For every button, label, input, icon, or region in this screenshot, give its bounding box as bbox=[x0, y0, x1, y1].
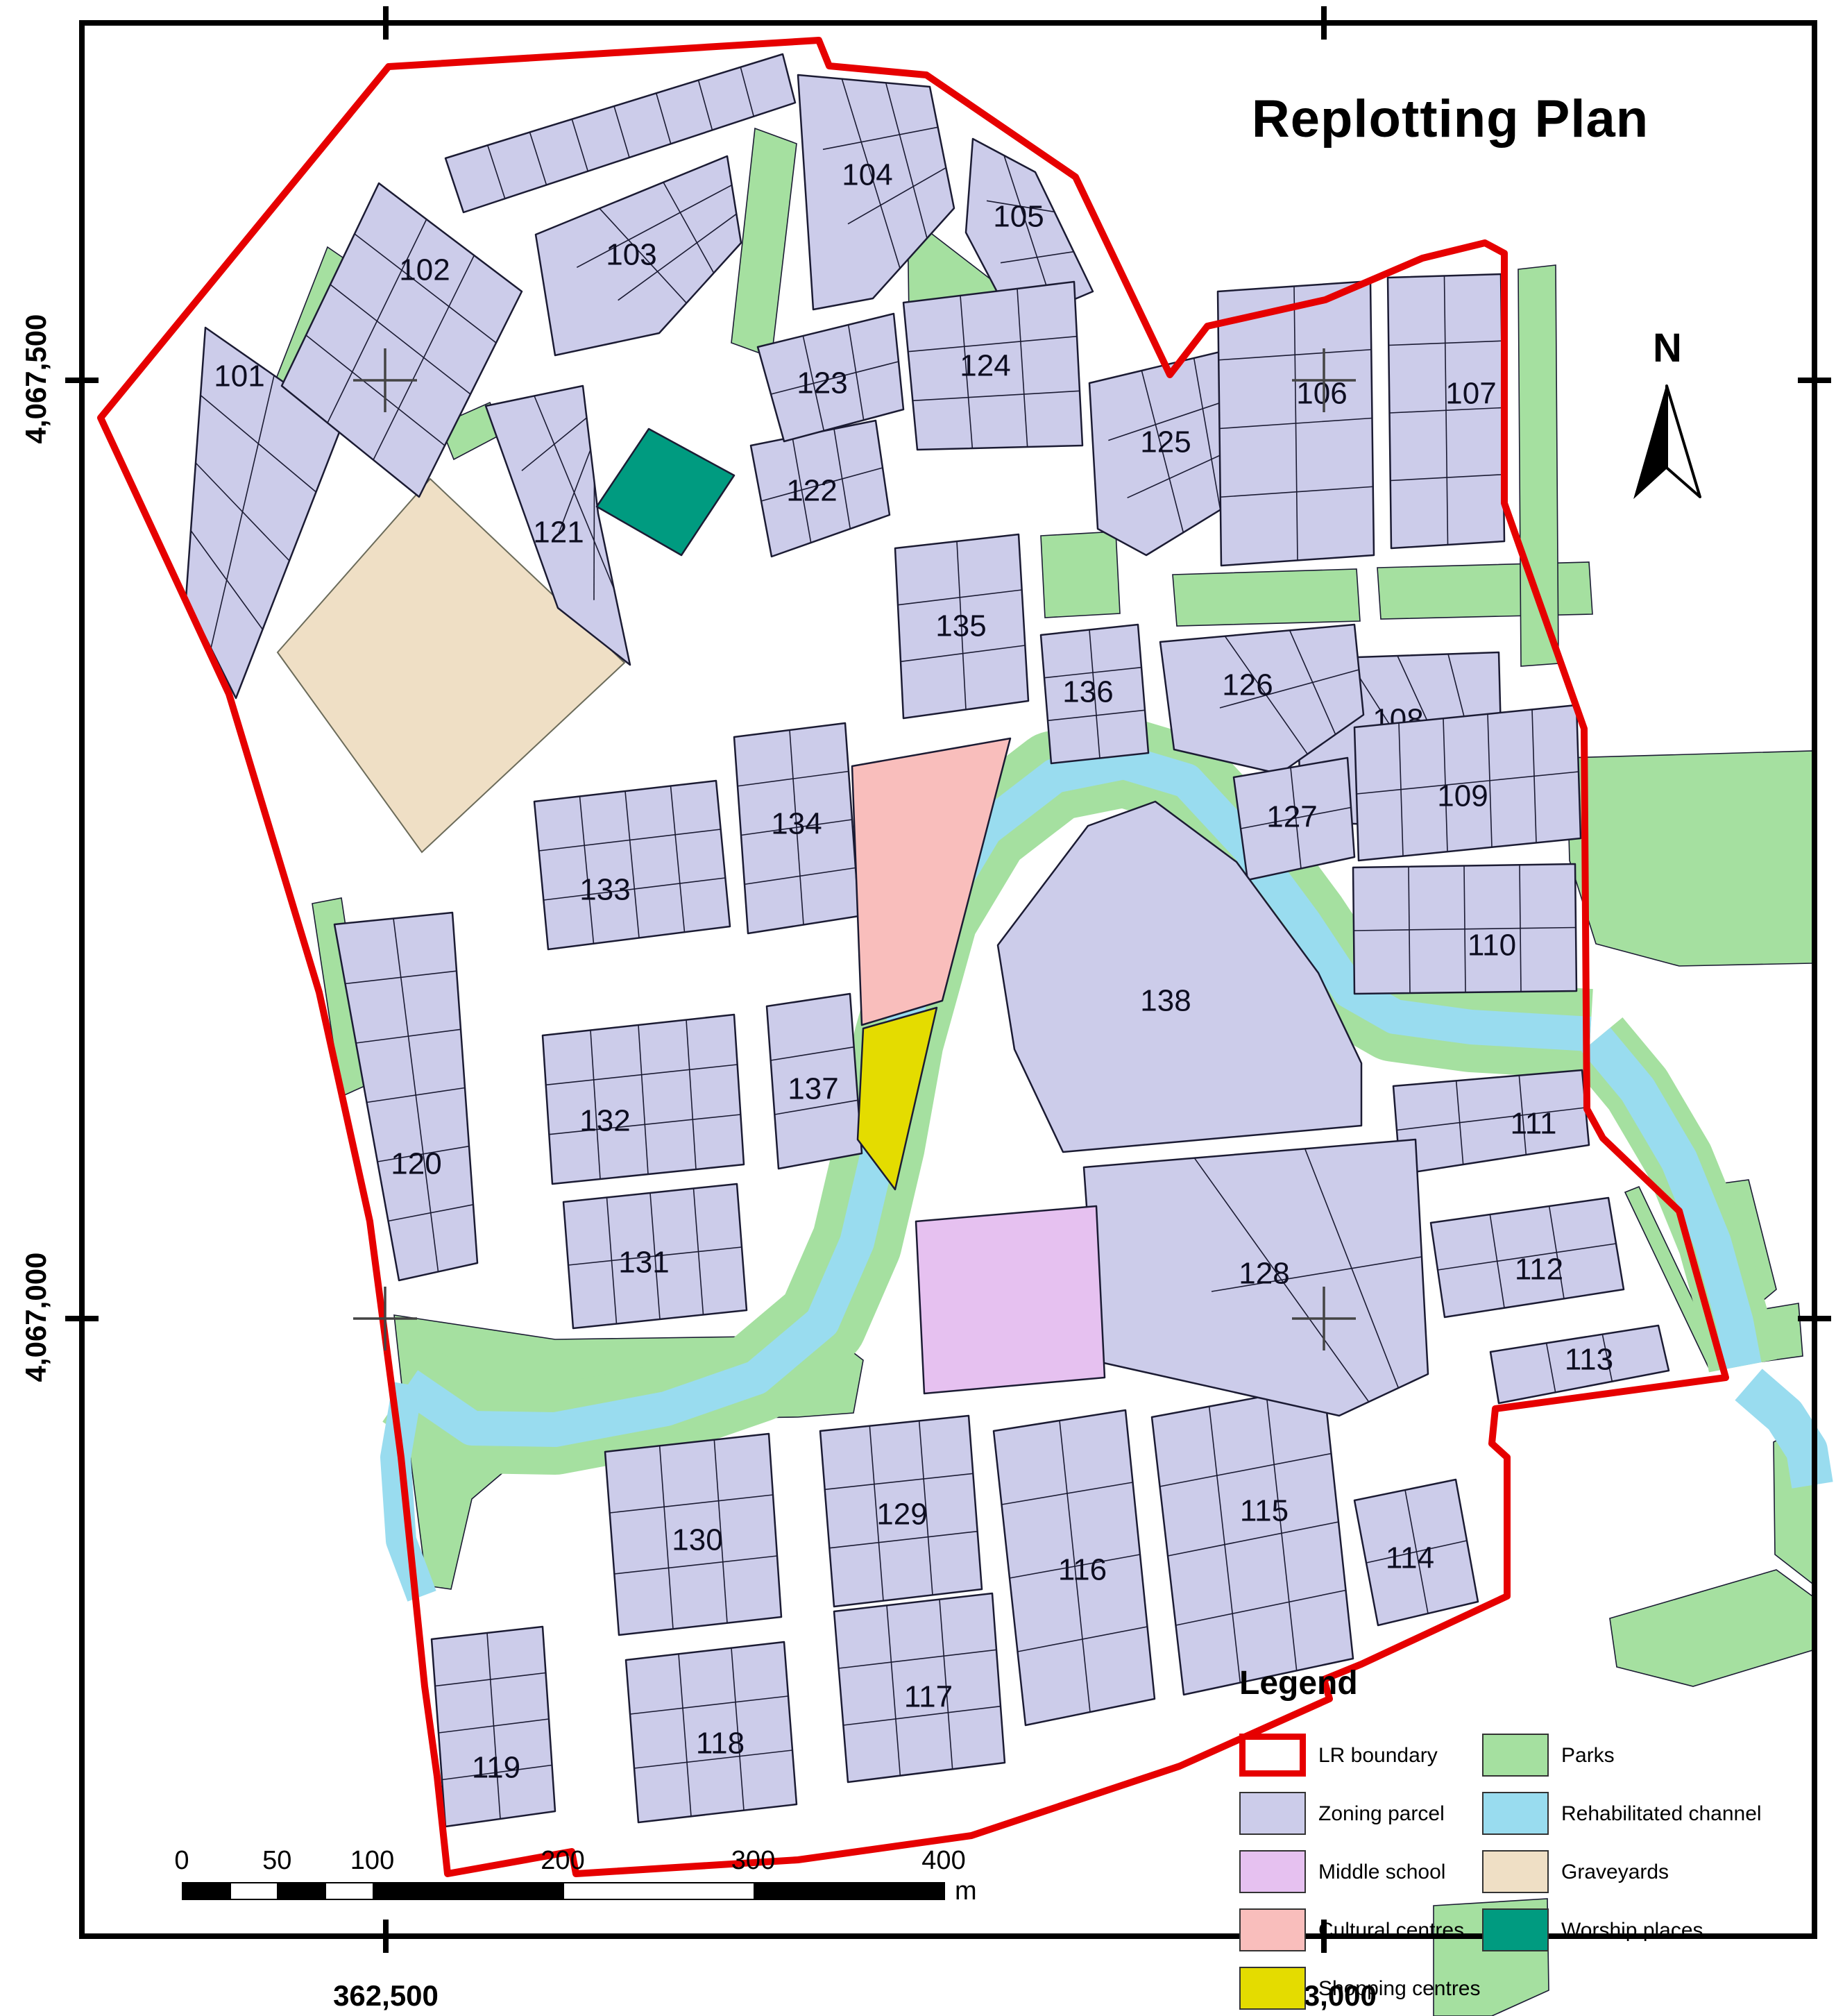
scale-label-0: 0 bbox=[174, 1846, 189, 1876]
parcel-label: 102 bbox=[399, 253, 450, 287]
parcel-label: 109 bbox=[1437, 779, 1488, 813]
parcel-label: 130 bbox=[672, 1523, 722, 1557]
legend-label: Zoning parcel bbox=[1318, 1802, 1445, 1826]
scale-label-50: 50 bbox=[262, 1846, 291, 1876]
zoning-block-109: 109 bbox=[1354, 705, 1581, 861]
scale-label-200: 200 bbox=[541, 1846, 584, 1876]
parcel-label: 112 bbox=[1515, 1253, 1563, 1287]
parcel-label: 126 bbox=[1222, 668, 1273, 702]
zoning-block-110: 110 bbox=[1353, 864, 1576, 994]
parcel-label: 132 bbox=[579, 1104, 630, 1138]
zoning-block-135: 135 bbox=[895, 534, 1028, 718]
legend-label: Parks bbox=[1561, 1744, 1615, 1768]
parcel-label: 136 bbox=[1062, 675, 1113, 709]
parcel-label: 134 bbox=[771, 807, 822, 841]
legend-label: Rehabilitated channel bbox=[1561, 1802, 1762, 1826]
parcel-label: 115 bbox=[1240, 1494, 1289, 1528]
parcel-polygon bbox=[1152, 1385, 1353, 1695]
zoning-block-131: 131 bbox=[563, 1184, 747, 1328]
parcel-label: 121 bbox=[533, 516, 584, 550]
legend-title: Legend bbox=[1239, 1664, 1358, 1702]
middle-school-area bbox=[916, 1206, 1105, 1394]
coord-label-4067000: 4,067,000 bbox=[19, 1213, 53, 1421]
zoning-block-107: 107 bbox=[1388, 274, 1504, 548]
park-area bbox=[1610, 1570, 1812, 1686]
parcel-label: 124 bbox=[960, 349, 1010, 383]
scalebar-segment bbox=[325, 1882, 374, 1900]
parcel-label: 138 bbox=[1140, 984, 1191, 1018]
scalebar-segment bbox=[373, 1882, 565, 1900]
zoning-block-103: 103 bbox=[536, 156, 741, 355]
parcel-label: 104 bbox=[842, 158, 892, 192]
scalebar-segment bbox=[754, 1882, 946, 1900]
middle-school-swatch bbox=[1239, 1850, 1306, 1893]
legend-label: Middle school bbox=[1318, 1861, 1445, 1884]
legend-label: Graveyards bbox=[1561, 1861, 1669, 1884]
zoning-block bbox=[445, 54, 795, 212]
parcel-polygon bbox=[1393, 1070, 1589, 1174]
parcel-label: 120 bbox=[391, 1147, 441, 1181]
parcel-label: 114 bbox=[1386, 1541, 1434, 1575]
scale-unit: m bbox=[955, 1877, 977, 1906]
zoning-block-112: 112 bbox=[1431, 1198, 1624, 1317]
parcel-label: 122 bbox=[786, 474, 837, 508]
legend-item-parks: Parks bbox=[1482, 1734, 1829, 1778]
parcel-label: 137 bbox=[788, 1072, 838, 1106]
scalebar-segment bbox=[563, 1882, 755, 1900]
zoning-block-128: 128 bbox=[1084, 1140, 1428, 1416]
north-arrow bbox=[1635, 386, 1700, 497]
zoning-block-120: 120 bbox=[334, 913, 477, 1280]
legend-item-worship-places: Worship places bbox=[1482, 1908, 1829, 1953]
parcel-label: 117 bbox=[904, 1680, 953, 1714]
park-area bbox=[1173, 569, 1360, 626]
shopping-centres-swatch bbox=[1239, 1967, 1306, 2010]
parcel-label: 131 bbox=[618, 1246, 669, 1280]
rehabilitated-channel-swatch bbox=[1482, 1792, 1549, 1835]
replotting-map: 1011021031041051211221231241251061071081… bbox=[0, 0, 1836, 2016]
zoning-block-137: 137 bbox=[767, 994, 862, 1169]
scale-label-100: 100 bbox=[350, 1846, 394, 1876]
zoning-block-118: 118 bbox=[626, 1642, 797, 1822]
parcel-label: 119 bbox=[472, 1751, 520, 1785]
zoning-block-129: 129 bbox=[820, 1416, 982, 1607]
graveyards-swatch bbox=[1482, 1850, 1549, 1893]
parcel-label: 106 bbox=[1296, 377, 1347, 411]
zoning-block-124: 124 bbox=[903, 282, 1082, 450]
scalebar-segment bbox=[277, 1882, 326, 1900]
north-arrow-left-half bbox=[1635, 386, 1667, 497]
lot-line bbox=[594, 482, 595, 600]
parcel-label: 103 bbox=[606, 238, 656, 272]
parcel-label: 123 bbox=[797, 366, 847, 400]
zoning-parcel-swatch bbox=[1239, 1792, 1306, 1835]
zoning-block-132: 132 bbox=[543, 1015, 744, 1184]
lr-boundary-swatch bbox=[1239, 1734, 1306, 1777]
zoning-block-116: 116 bbox=[994, 1410, 1155, 1725]
park-area bbox=[1567, 751, 1812, 966]
zoning-block-130: 130 bbox=[605, 1434, 781, 1635]
park-area bbox=[1377, 562, 1592, 619]
parcel-label: 116 bbox=[1058, 1553, 1107, 1587]
zoning-block-122: 122 bbox=[751, 421, 890, 557]
zoning-block-123: 123 bbox=[758, 314, 903, 441]
north-arrow-right-half bbox=[1667, 386, 1700, 497]
zoning-block-106: 106 bbox=[1218, 281, 1374, 566]
zoning-block-111: 111 bbox=[1393, 1070, 1589, 1174]
scale-label-400: 400 bbox=[921, 1846, 965, 1876]
parcel-label: 113 bbox=[1565, 1343, 1613, 1377]
zoning-block-127: 127 bbox=[1234, 758, 1354, 880]
zoning-block-133: 133 bbox=[534, 781, 730, 949]
legend-label: Cultural centres bbox=[1318, 1919, 1464, 1942]
parcel-label: 133 bbox=[579, 873, 630, 907]
parcel-label: 111 bbox=[1511, 1107, 1557, 1141]
worship-place-area bbox=[597, 429, 734, 555]
scale-label-300: 300 bbox=[731, 1846, 775, 1876]
parcel-label: 105 bbox=[993, 200, 1044, 234]
cultural-centres-swatch bbox=[1239, 1908, 1306, 1951]
scalebar-segment bbox=[230, 1882, 279, 1900]
parcel-polygon bbox=[445, 54, 795, 212]
parcel-label: 129 bbox=[876, 1498, 927, 1532]
north-label: N bbox=[1643, 325, 1692, 371]
parcel-label: 127 bbox=[1266, 800, 1317, 834]
zoning-block-134: 134 bbox=[734, 723, 859, 933]
scalebar-segment bbox=[182, 1882, 231, 1900]
parcel-label: 135 bbox=[935, 609, 986, 643]
legend-label: LR boundary bbox=[1318, 1744, 1438, 1768]
zoning-block-114: 114 bbox=[1354, 1480, 1478, 1625]
parcel-label: 110 bbox=[1468, 929, 1516, 963]
parcel-label: 125 bbox=[1140, 425, 1191, 459]
legend-label: Worship places bbox=[1561, 1919, 1703, 1942]
legend-item-graveyards: Graveyards bbox=[1482, 1850, 1829, 1895]
legend-item-rehabilitated-channel: Rehabilitated channel bbox=[1482, 1792, 1829, 1836]
worship-places-swatch bbox=[1482, 1908, 1549, 1951]
legend-item-shopping-centres: Shopping centres bbox=[1239, 1967, 1586, 2011]
zoning-block-115: 115 bbox=[1152, 1385, 1353, 1695]
parcel-label: 128 bbox=[1239, 1257, 1289, 1291]
zoning-block-136: 136 bbox=[1041, 625, 1148, 763]
park-area bbox=[1041, 532, 1120, 618]
map-title: Replotting Plan bbox=[1249, 89, 1651, 149]
zoning-block-117: 117 bbox=[834, 1593, 1005, 1782]
zoning-block-119: 119 bbox=[432, 1627, 555, 1827]
parcel-label: 118 bbox=[696, 1727, 745, 1761]
coord-label-362500: 362,500 bbox=[282, 1979, 490, 2013]
coord-label-4067500: 4,067,500 bbox=[19, 275, 53, 483]
legend-label: Shopping centres bbox=[1318, 1977, 1481, 2001]
parcel-label: 107 bbox=[1445, 377, 1496, 411]
parcel-label: 101 bbox=[214, 359, 264, 393]
parks-swatch bbox=[1482, 1734, 1549, 1777]
